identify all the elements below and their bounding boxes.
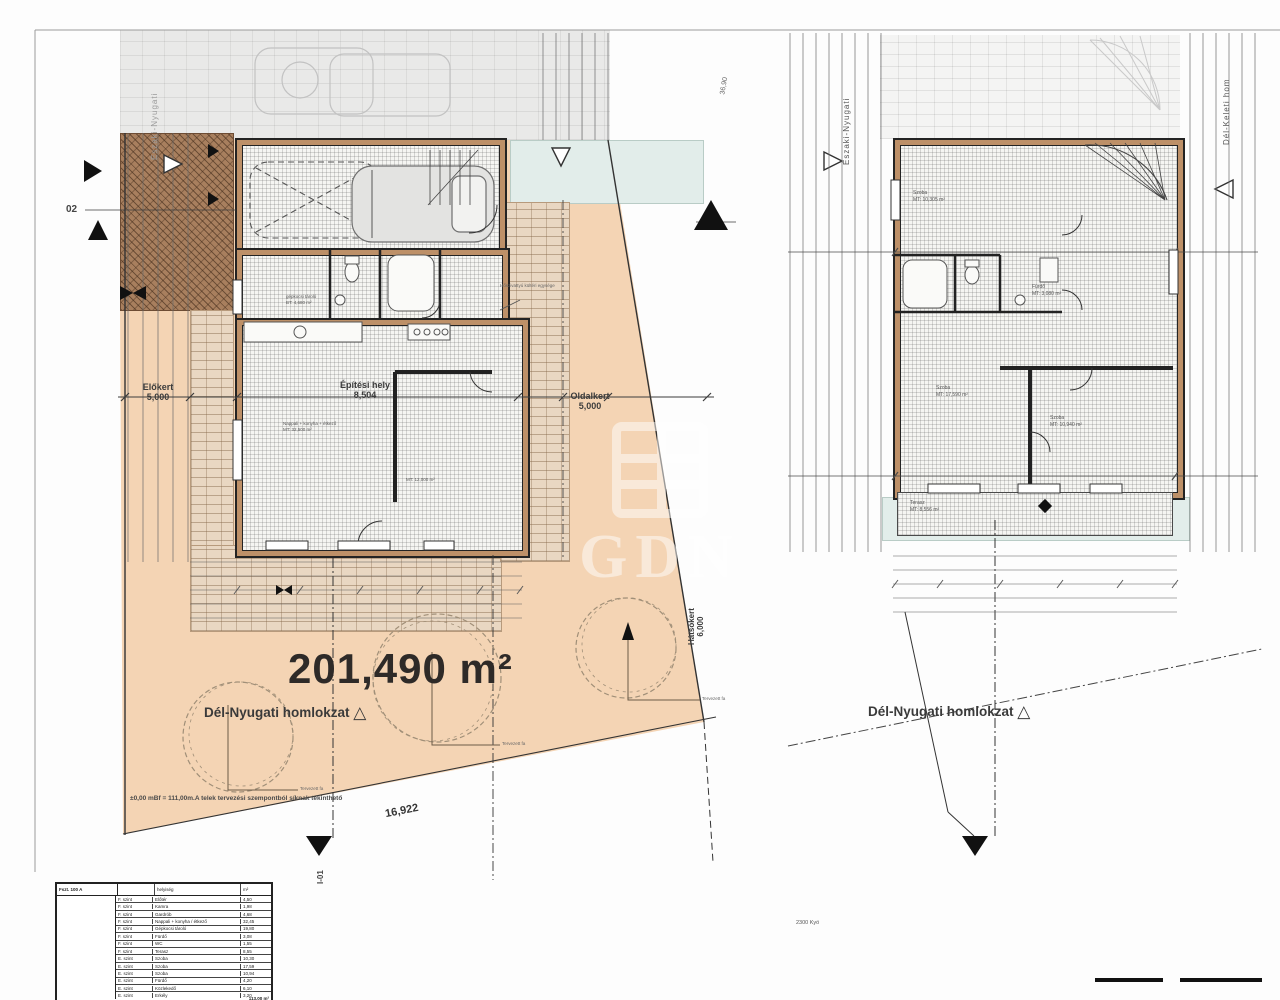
left-lower-dim-rows <box>190 562 523 618</box>
edge-label-upper-right: Dél-Keleti hom <box>1222 79 1231 145</box>
table-row: F. szint Előtér 4,50 <box>116 896 271 903</box>
room-schedule-col-area: m² <box>241 884 271 895</box>
room-label-living: Nappali + konyha + étkező MT: 32,500 m² <box>283 421 336 433</box>
front-yard-dim: Előkert 5,000 <box>128 383 188 403</box>
upper-horizontal-dims <box>788 248 1258 480</box>
drawing-sheet: 201,490 m² Dél-Nyugati homlokzat △ Dél-N… <box>0 0 1280 1000</box>
room-label-bedroom3: Szoba MT: 10,940 m² <box>1050 415 1082 428</box>
room-schedule-total: 113,00 m² <box>249 996 269 1000</box>
rear-yard-dim: Hátsókert 6,000 <box>688 608 706 645</box>
upper-underlay-stair <box>1090 36 1160 110</box>
side-yard-dim: Oldalkert 5,000 <box>560 392 620 412</box>
facade-label-site: Dél-Nyugati homlokzat △ <box>204 703 366 723</box>
table-row: F. szint Nappali + konyha / étkező 32,45 <box>116 918 271 925</box>
site-dim-lines <box>128 33 608 562</box>
room-schedule-col-room: helyiség <box>155 884 241 895</box>
table-row: E. szint Közlekedő 6,10 <box>116 985 271 992</box>
facade-triangle-icon: △ <box>353 703 366 722</box>
table-row: F. szint Kamra 1,98 <box>116 903 271 910</box>
upper-diagonal-dashdot <box>788 649 1262 746</box>
facade-triangle-icon-2: △ <box>1017 702 1030 721</box>
level-note: ±0,00 mBf = 111,00m.A telek tervezési sz… <box>130 795 342 802</box>
room-label-garage: gépkocsi tároló BT: 4,680 m² <box>286 294 316 306</box>
table-row: E. szint Szoba 10,30 <box>116 955 271 962</box>
room-label-terrace: Terasz MT: 8,556 m² <box>910 500 939 513</box>
room-schedule-leftcol <box>57 896 116 999</box>
upper-dim-lines-left <box>790 33 881 552</box>
room-schedule-title: Fszt. 100 A <box>57 884 118 895</box>
room-label-bedroom1: Szoba MT: 10,305 m² <box>913 190 945 203</box>
elevation-markers <box>84 144 988 856</box>
table-row: F. szint Terasz 8,55 <box>116 948 271 955</box>
table-row: F. szint Gépkocsi tároló 19,80 <box>116 926 271 933</box>
open-triangle-markers <box>164 148 1233 198</box>
table-row: F. szint Fürdő 3,08 <box>116 933 271 940</box>
ground-floor-windows <box>233 280 454 550</box>
tree-label-3: Tervezett fa <box>702 696 725 701</box>
tree-north-arrowhead <box>622 622 634 640</box>
room-label-extra: MT: 12,000 m² <box>406 477 435 483</box>
facade-label-upper: Dél-Nyugati homlokzat △ <box>868 702 1030 722</box>
heat-pump-note: Hőszivattyú kültéri egysége <box>500 283 555 288</box>
lot-area-text: 201,490 m² <box>288 645 513 693</box>
table-row: F. szint WC 1,55 <box>116 941 271 948</box>
titleblock-mark-2 <box>1180 978 1262 982</box>
upper-stair <box>1085 143 1167 200</box>
table-row: E. szint Fürdő 4,20 <box>116 978 271 985</box>
table-row: E. szint Szoba 17,59 <box>116 963 271 970</box>
bottom-note-upper: 2300 Kyö <box>796 920 819 926</box>
room-schedule-header: Fszt. 100 A helyiség m² <box>57 884 271 896</box>
table-row: E. szint Szoba 10,94 <box>116 970 271 977</box>
terrace-drain-marker <box>1038 499 1052 513</box>
room-schedule-rows: F. szint Előtér 4,50 F. szint Kamra 1,98… <box>116 896 271 999</box>
upper-diagonal-solid2 <box>948 812 974 836</box>
upper-lower-dim-rows <box>892 556 1178 612</box>
building-zone-dim: Építési hely 8,504 <box>330 381 400 401</box>
edge-label-upper-left: Északi-Nyugati <box>842 98 851 165</box>
tree-label-2: Tervezett fa <box>502 741 525 746</box>
room-schedule-table: Fszt. 100 A helyiség m² F. szint Előtér … <box>55 882 273 1000</box>
edge-label-site: Északi-Nyugati <box>150 93 159 160</box>
lot-boundary-bottom-diagonal <box>123 717 716 834</box>
room-label-bath: Fürdő MT: 3,080 m² <box>1032 284 1061 297</box>
upper-windows <box>891 180 1178 493</box>
lot-boundary-right-dashed <box>704 722 713 862</box>
room-label-bedroom2: Szoba MT: 17,590 m² <box>936 385 968 398</box>
neighbour-cars <box>255 48 450 116</box>
marker-02-label: 02 <box>66 204 77 216</box>
gdn-watermark-window-icon <box>612 422 708 518</box>
tree-label-1: Tervezett fa <box>300 786 323 791</box>
gdn-watermark-letters: GDN <box>565 522 755 593</box>
section-label-I01: I-01 <box>316 870 325 884</box>
gdn-watermark: GDN <box>565 422 755 593</box>
ground-floor-fixtures <box>244 255 450 342</box>
planned-trees <box>183 598 676 792</box>
garage-car-solid <box>352 166 494 242</box>
table-row: F. szint Gardrób 4,68 <box>116 911 271 918</box>
upper-fixtures <box>903 258 1058 308</box>
yard-dimension-line <box>118 393 714 401</box>
titleblock-mark-1 <box>1095 978 1163 982</box>
heat-pump-leader <box>500 300 520 310</box>
